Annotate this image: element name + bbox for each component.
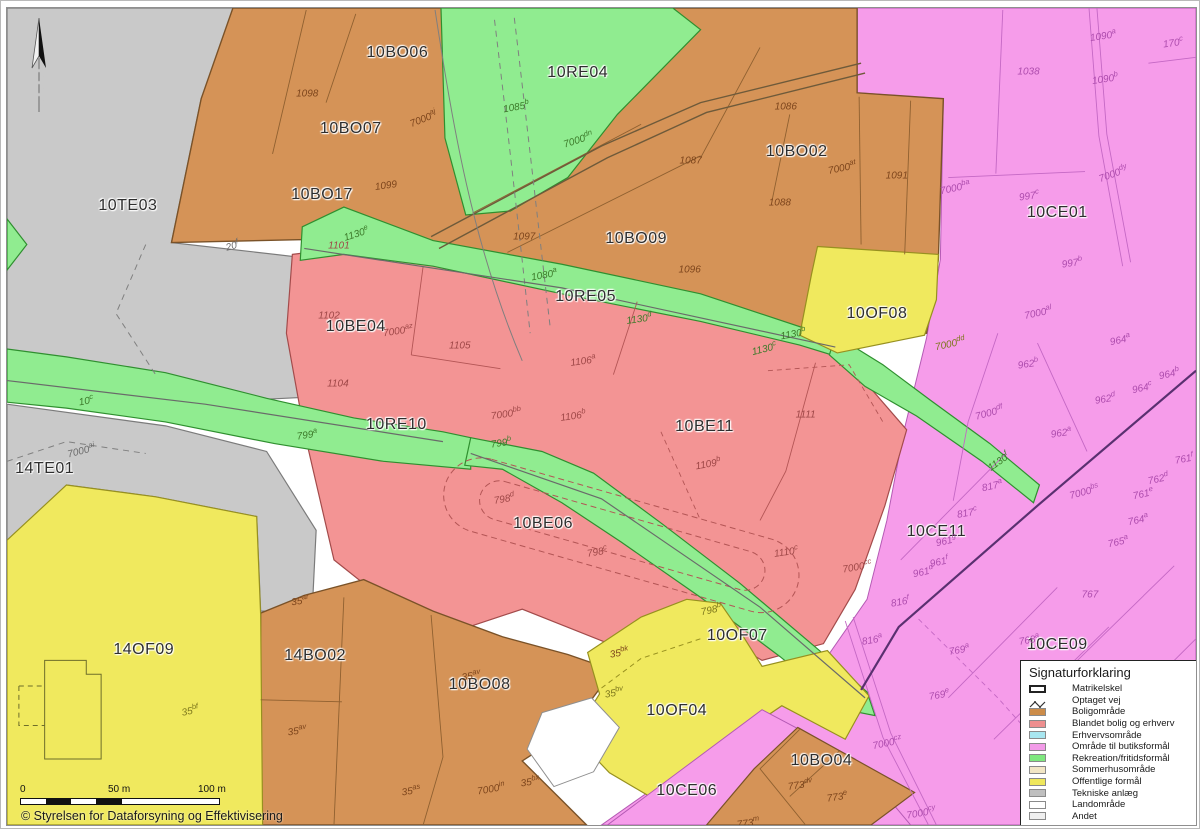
legend-item: Sommerhusområde (1029, 764, 1197, 776)
legend-item: Landområde (1029, 799, 1197, 811)
legend-item: Optaget vej (1029, 695, 1197, 707)
scale-tick-100: 100 m (198, 784, 226, 795)
map-frame: 10TE0310BO0610BO0710BO1710RE0410BO0210BO… (6, 7, 1197, 826)
legend-swatch (1029, 766, 1046, 774)
legend-swatch (1029, 789, 1046, 797)
legend-label: Område til butiksformål (1072, 741, 1170, 752)
legend-item: Område til butiksformål (1029, 741, 1197, 753)
legend-item: Offentlige formål (1029, 776, 1197, 788)
legend-swatch (1029, 754, 1046, 762)
north-arrow-icon (27, 16, 51, 116)
legend-item: Tekniske anlæg (1029, 787, 1197, 799)
legend-label: Erhvervsområde (1072, 730, 1142, 741)
scale-bar: 0 50 m 100 m (20, 784, 230, 810)
legend-label: Andet (1072, 811, 1097, 822)
legend-swatch (1029, 708, 1046, 716)
legend-label: Matrikelskel (1072, 683, 1122, 694)
optaget-vej-icon (1029, 696, 1046, 704)
map-page: 10TE0310BO0610BO0710BO1710RE0410BO0210BO… (0, 0, 1200, 829)
legend: Signaturforklaring MatrikelskelOptaget v… (1020, 660, 1197, 826)
legend-swatch (1029, 743, 1046, 751)
legend-label: Landområde (1072, 799, 1125, 810)
legend-swatch (1029, 801, 1046, 809)
legend-item: Andet (1029, 811, 1197, 823)
legend-label: Sommerhusområde (1072, 764, 1155, 775)
scale-tick-0: 0 (20, 784, 26, 795)
legend-label: Boligområde (1072, 706, 1125, 717)
legend-label: Offentlige formål (1072, 776, 1142, 787)
legend-label: Optaget vej (1072, 695, 1121, 706)
legend-swatch (1029, 778, 1046, 786)
legend-item: Erhvervsområde (1029, 729, 1197, 741)
scale-tick-50: 50 m (108, 784, 130, 795)
legend-swatch (1029, 720, 1046, 728)
legend-label: Blandet bolig og erhverv (1072, 718, 1174, 729)
legend-label: Tekniske anlæg (1072, 788, 1138, 799)
copyright-notice: © Styrelsen for Dataforsyning og Effekti… (21, 809, 283, 823)
map-canvas (7, 8, 1196, 825)
legend-rows: MatrikelskelOptaget vejBoligområdeBlande… (1029, 683, 1197, 822)
legend-item: Rekreation/fritidsformål (1029, 753, 1197, 765)
legend-swatch (1029, 812, 1046, 820)
legend-swatch (1029, 731, 1046, 739)
legend-item: Boligområde (1029, 706, 1197, 718)
legend-item: Blandet bolig og erhverv (1029, 718, 1197, 730)
scale-bar-segments (20, 798, 220, 805)
legend-label: Rekreation/fritidsformål (1072, 753, 1170, 764)
legend-title: Signaturforklaring (1029, 665, 1197, 680)
legend-item: Matrikelskel (1029, 683, 1197, 695)
legend-swatch (1029, 685, 1046, 693)
